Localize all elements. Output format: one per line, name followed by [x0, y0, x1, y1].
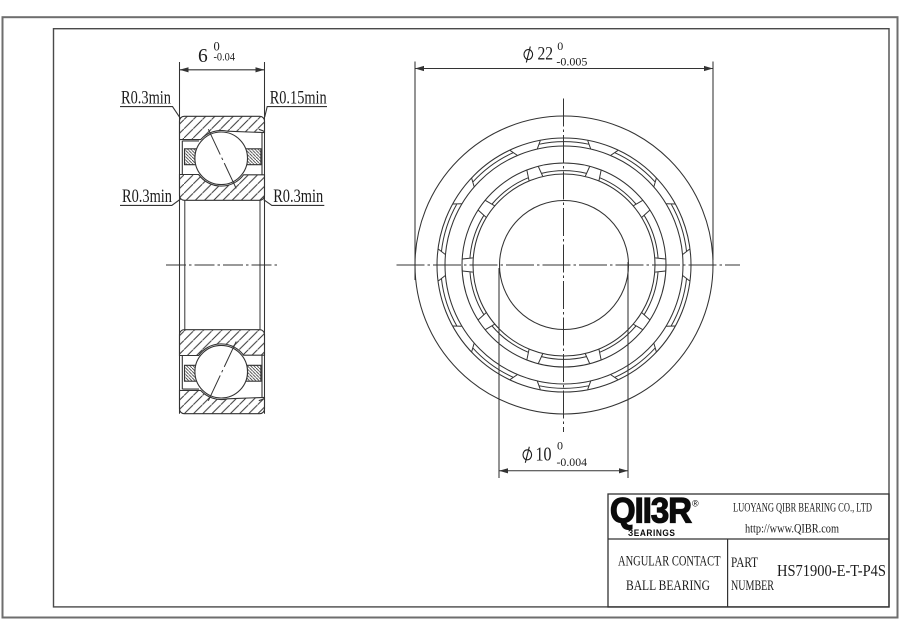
svg-text:QII3R: QII3R	[610, 492, 692, 531]
svg-text:http://www.QIBR.com: http://www.QIBR.com	[745, 520, 839, 535]
svg-text:-0.04: -0.04	[214, 51, 236, 63]
svg-text:10: 10	[536, 445, 552, 466]
svg-text:R0.3min: R0.3min	[122, 186, 172, 207]
svg-text:®: ®	[692, 499, 699, 509]
svg-text:ЗEARINGS: ЗEARINGS	[628, 528, 676, 538]
svg-text:6: 6	[198, 46, 208, 67]
svg-text:LUOYANG QIBR BEARING CO., LTD: LUOYANG QIBR BEARING CO., LTD	[733, 500, 872, 515]
svg-text:R0.15min: R0.15min	[270, 88, 327, 109]
svg-text:HS71900-E-T-P4S: HS71900-E-T-P4S	[777, 561, 886, 580]
svg-text:0: 0	[557, 439, 563, 453]
svg-text:-0.004: -0.004	[557, 455, 588, 469]
svg-text:0: 0	[557, 39, 563, 53]
svg-text:R0.3min: R0.3min	[273, 186, 323, 207]
svg-text:NUMBER: NUMBER	[731, 578, 774, 594]
svg-text:22: 22	[538, 43, 554, 64]
svg-text:-0.005: -0.005	[556, 55, 587, 69]
svg-text:R0.3min: R0.3min	[121, 88, 171, 109]
svg-text:ANGULAR CONTACT: ANGULAR CONTACT	[618, 553, 721, 569]
svg-text:BALL BEARING: BALL BEARING	[626, 578, 710, 594]
svg-text:PART: PART	[731, 555, 758, 571]
